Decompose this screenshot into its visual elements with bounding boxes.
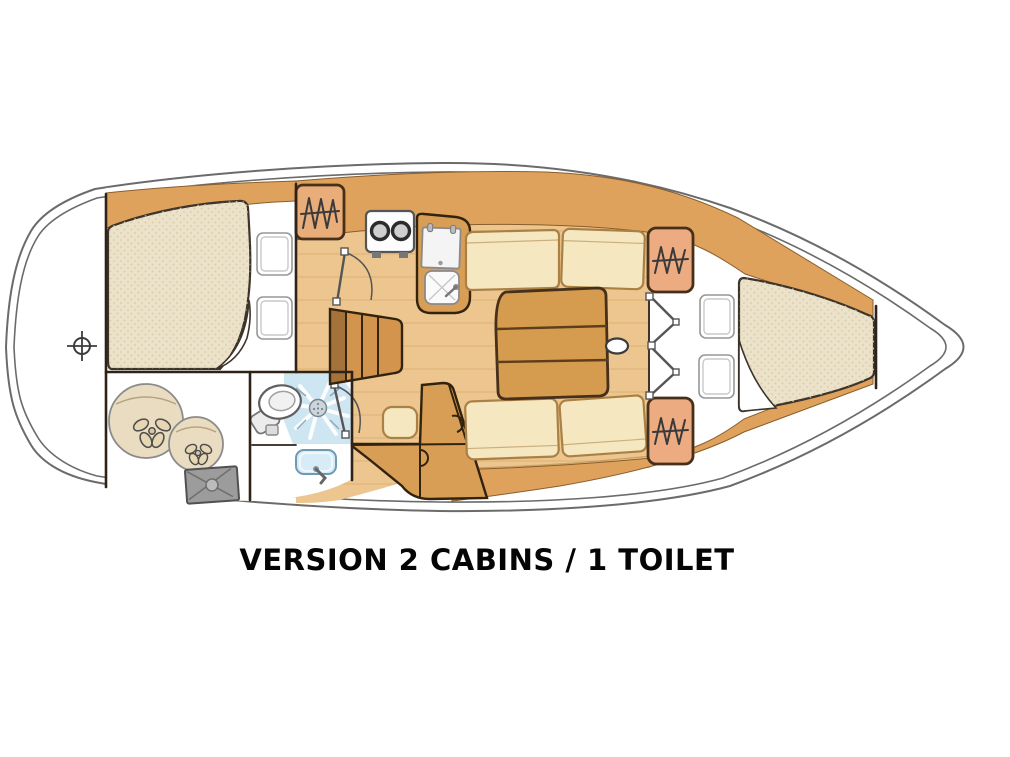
door-hinge	[648, 342, 655, 349]
settee-cushion	[559, 395, 647, 457]
nav-seat-cushion	[383, 407, 417, 438]
pillow	[700, 295, 734, 338]
pillow	[257, 233, 292, 275]
saloon-table	[496, 288, 608, 399]
stove-icon	[366, 211, 414, 258]
burner-icon	[393, 223, 410, 240]
plan-caption: VERSION 2 CABINS / 1 TOILET	[239, 543, 734, 577]
settee-cushion	[466, 230, 559, 290]
stove-foot	[372, 252, 381, 258]
door-hinge	[646, 293, 653, 300]
pillow	[699, 355, 734, 398]
deck-hatch-icon	[185, 466, 239, 504]
door-hinge	[342, 431, 349, 438]
settee-cushion	[561, 229, 645, 290]
boat-floor-plan-page: VERSION 2 CABINS / 1 TOILET	[0, 0, 1010, 757]
door-hinge	[341, 248, 348, 255]
settee-cushion	[465, 398, 559, 459]
galley-sink-icon	[425, 271, 459, 304]
door-pivot	[673, 369, 679, 375]
floor-plan-canvas: VERSION 2 CABINS / 1 TOILET	[0, 0, 1010, 757]
door-hinge	[646, 392, 653, 399]
door-pivot	[673, 319, 679, 325]
aft-mattress-texture	[108, 201, 250, 369]
burner-icon	[372, 223, 389, 240]
stove-foot	[399, 252, 408, 258]
door-hinge	[333, 298, 340, 305]
pillow	[257, 297, 292, 339]
chart-table-edge	[352, 444, 470, 445]
mast-icon	[606, 339, 628, 354]
fridge-icon	[421, 223, 461, 268]
